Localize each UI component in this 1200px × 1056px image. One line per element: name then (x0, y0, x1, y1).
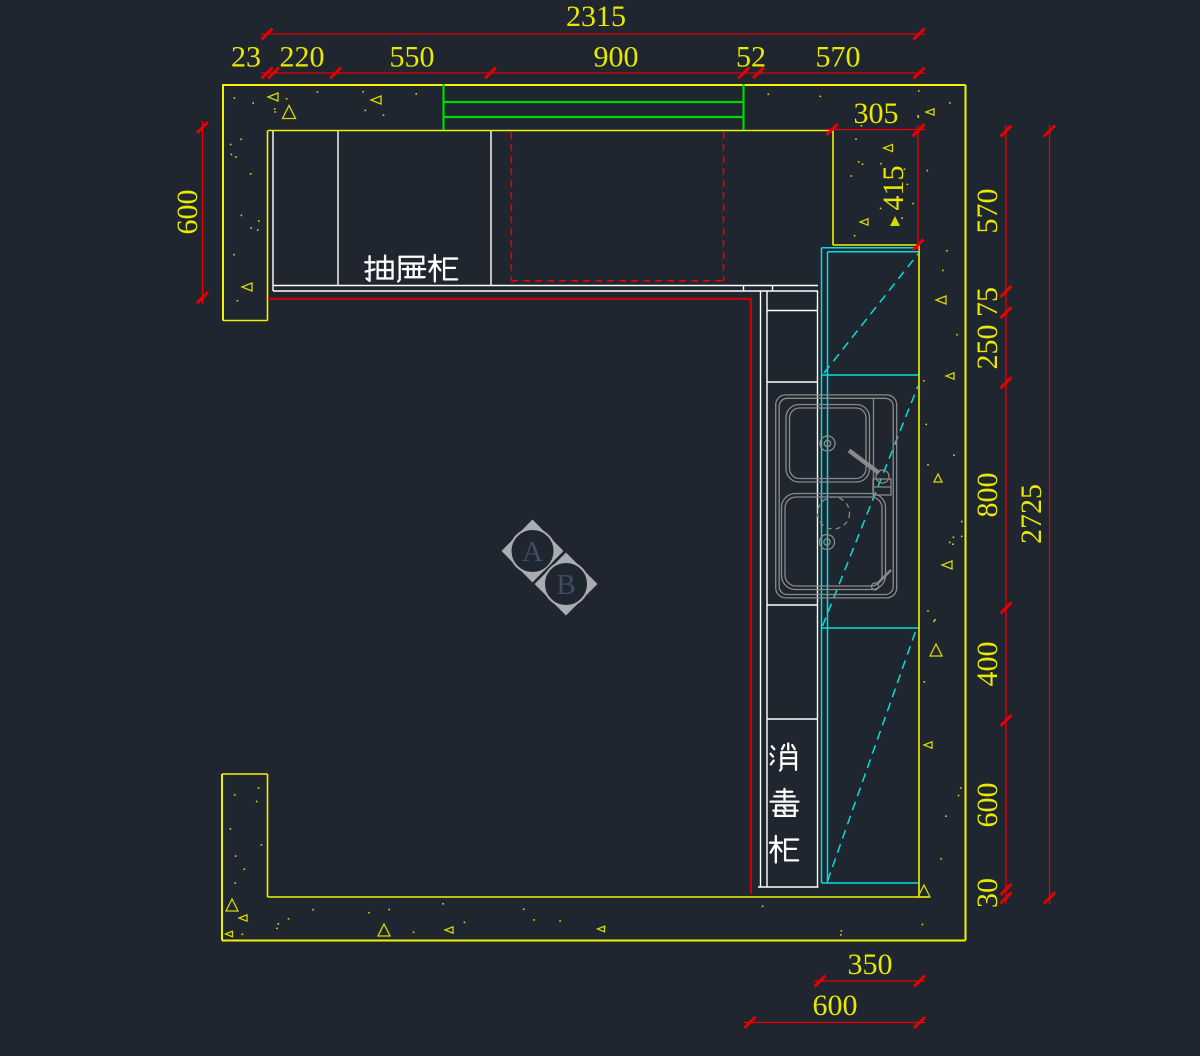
svg-text:350: 350 (848, 948, 893, 981)
svg-text:250: 250 (971, 325, 1004, 370)
svg-text:23: 23 (231, 41, 261, 74)
svg-text:570: 570 (971, 189, 1004, 234)
svg-text:B: B (556, 569, 575, 601)
svg-text:600: 600 (971, 783, 1004, 828)
svg-text:2725: 2725 (1015, 484, 1048, 544)
svg-text:A: A (522, 536, 543, 568)
svg-text:900: 900 (594, 41, 639, 74)
svg-text:220: 220 (280, 41, 325, 74)
svg-text:75: 75 (971, 287, 1004, 317)
svg-text:400: 400 (971, 642, 1004, 687)
svg-text:2315: 2315 (566, 0, 626, 33)
svg-text:52: 52 (736, 41, 766, 74)
svg-text:415: 415 (877, 166, 910, 211)
svg-text:570: 570 (816, 41, 861, 74)
svg-text:800: 800 (971, 473, 1004, 518)
svg-text:600: 600 (813, 989, 858, 1022)
svg-text:30: 30 (971, 878, 1004, 908)
svg-text:600: 600 (171, 190, 204, 235)
svg-text:550: 550 (390, 41, 435, 74)
svg-text:305: 305 (854, 97, 899, 130)
